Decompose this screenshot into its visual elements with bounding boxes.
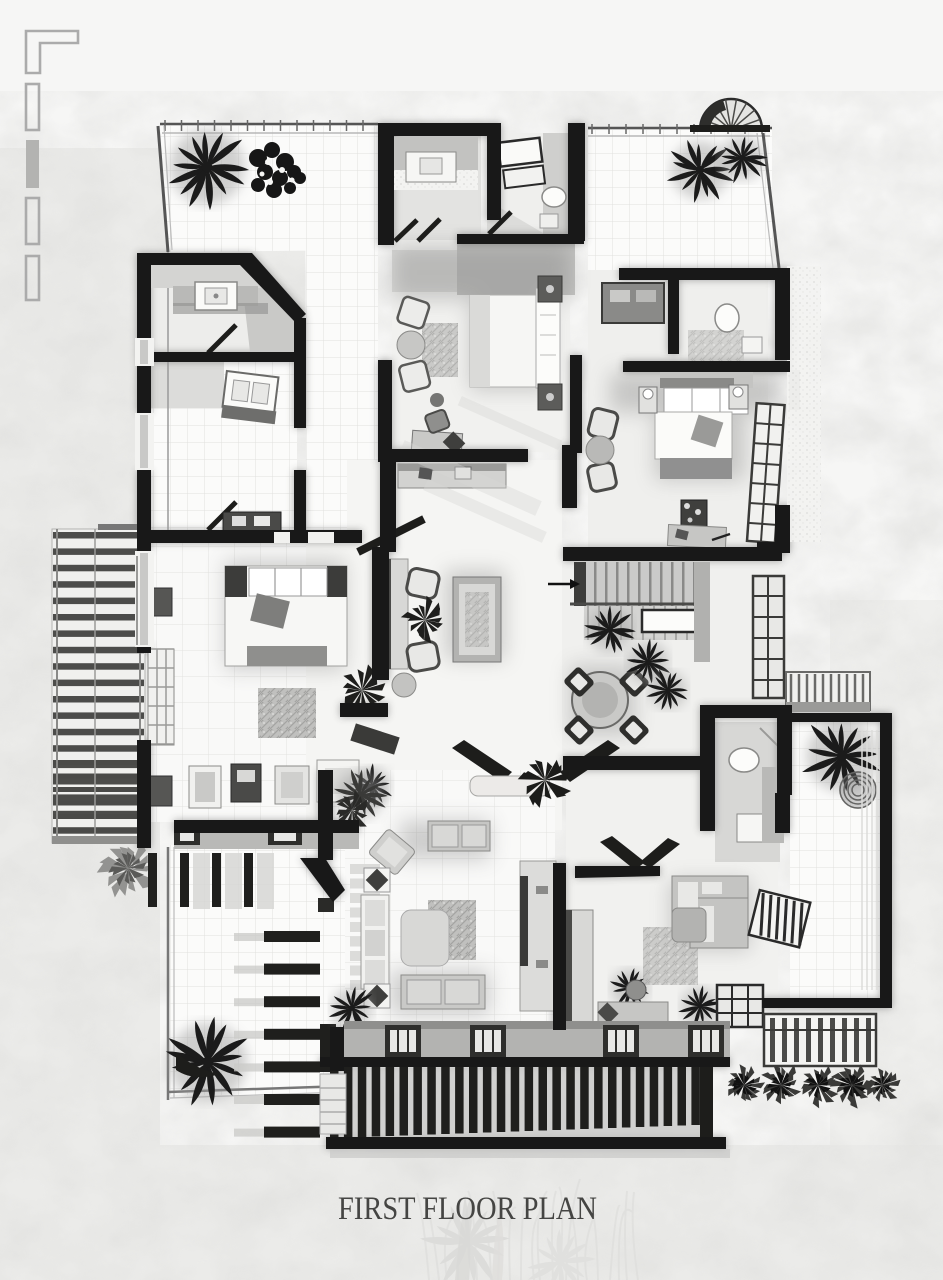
svg-text:FIRST FLOOR PLAN: FIRST FLOOR PLAN	[338, 1191, 597, 1227]
